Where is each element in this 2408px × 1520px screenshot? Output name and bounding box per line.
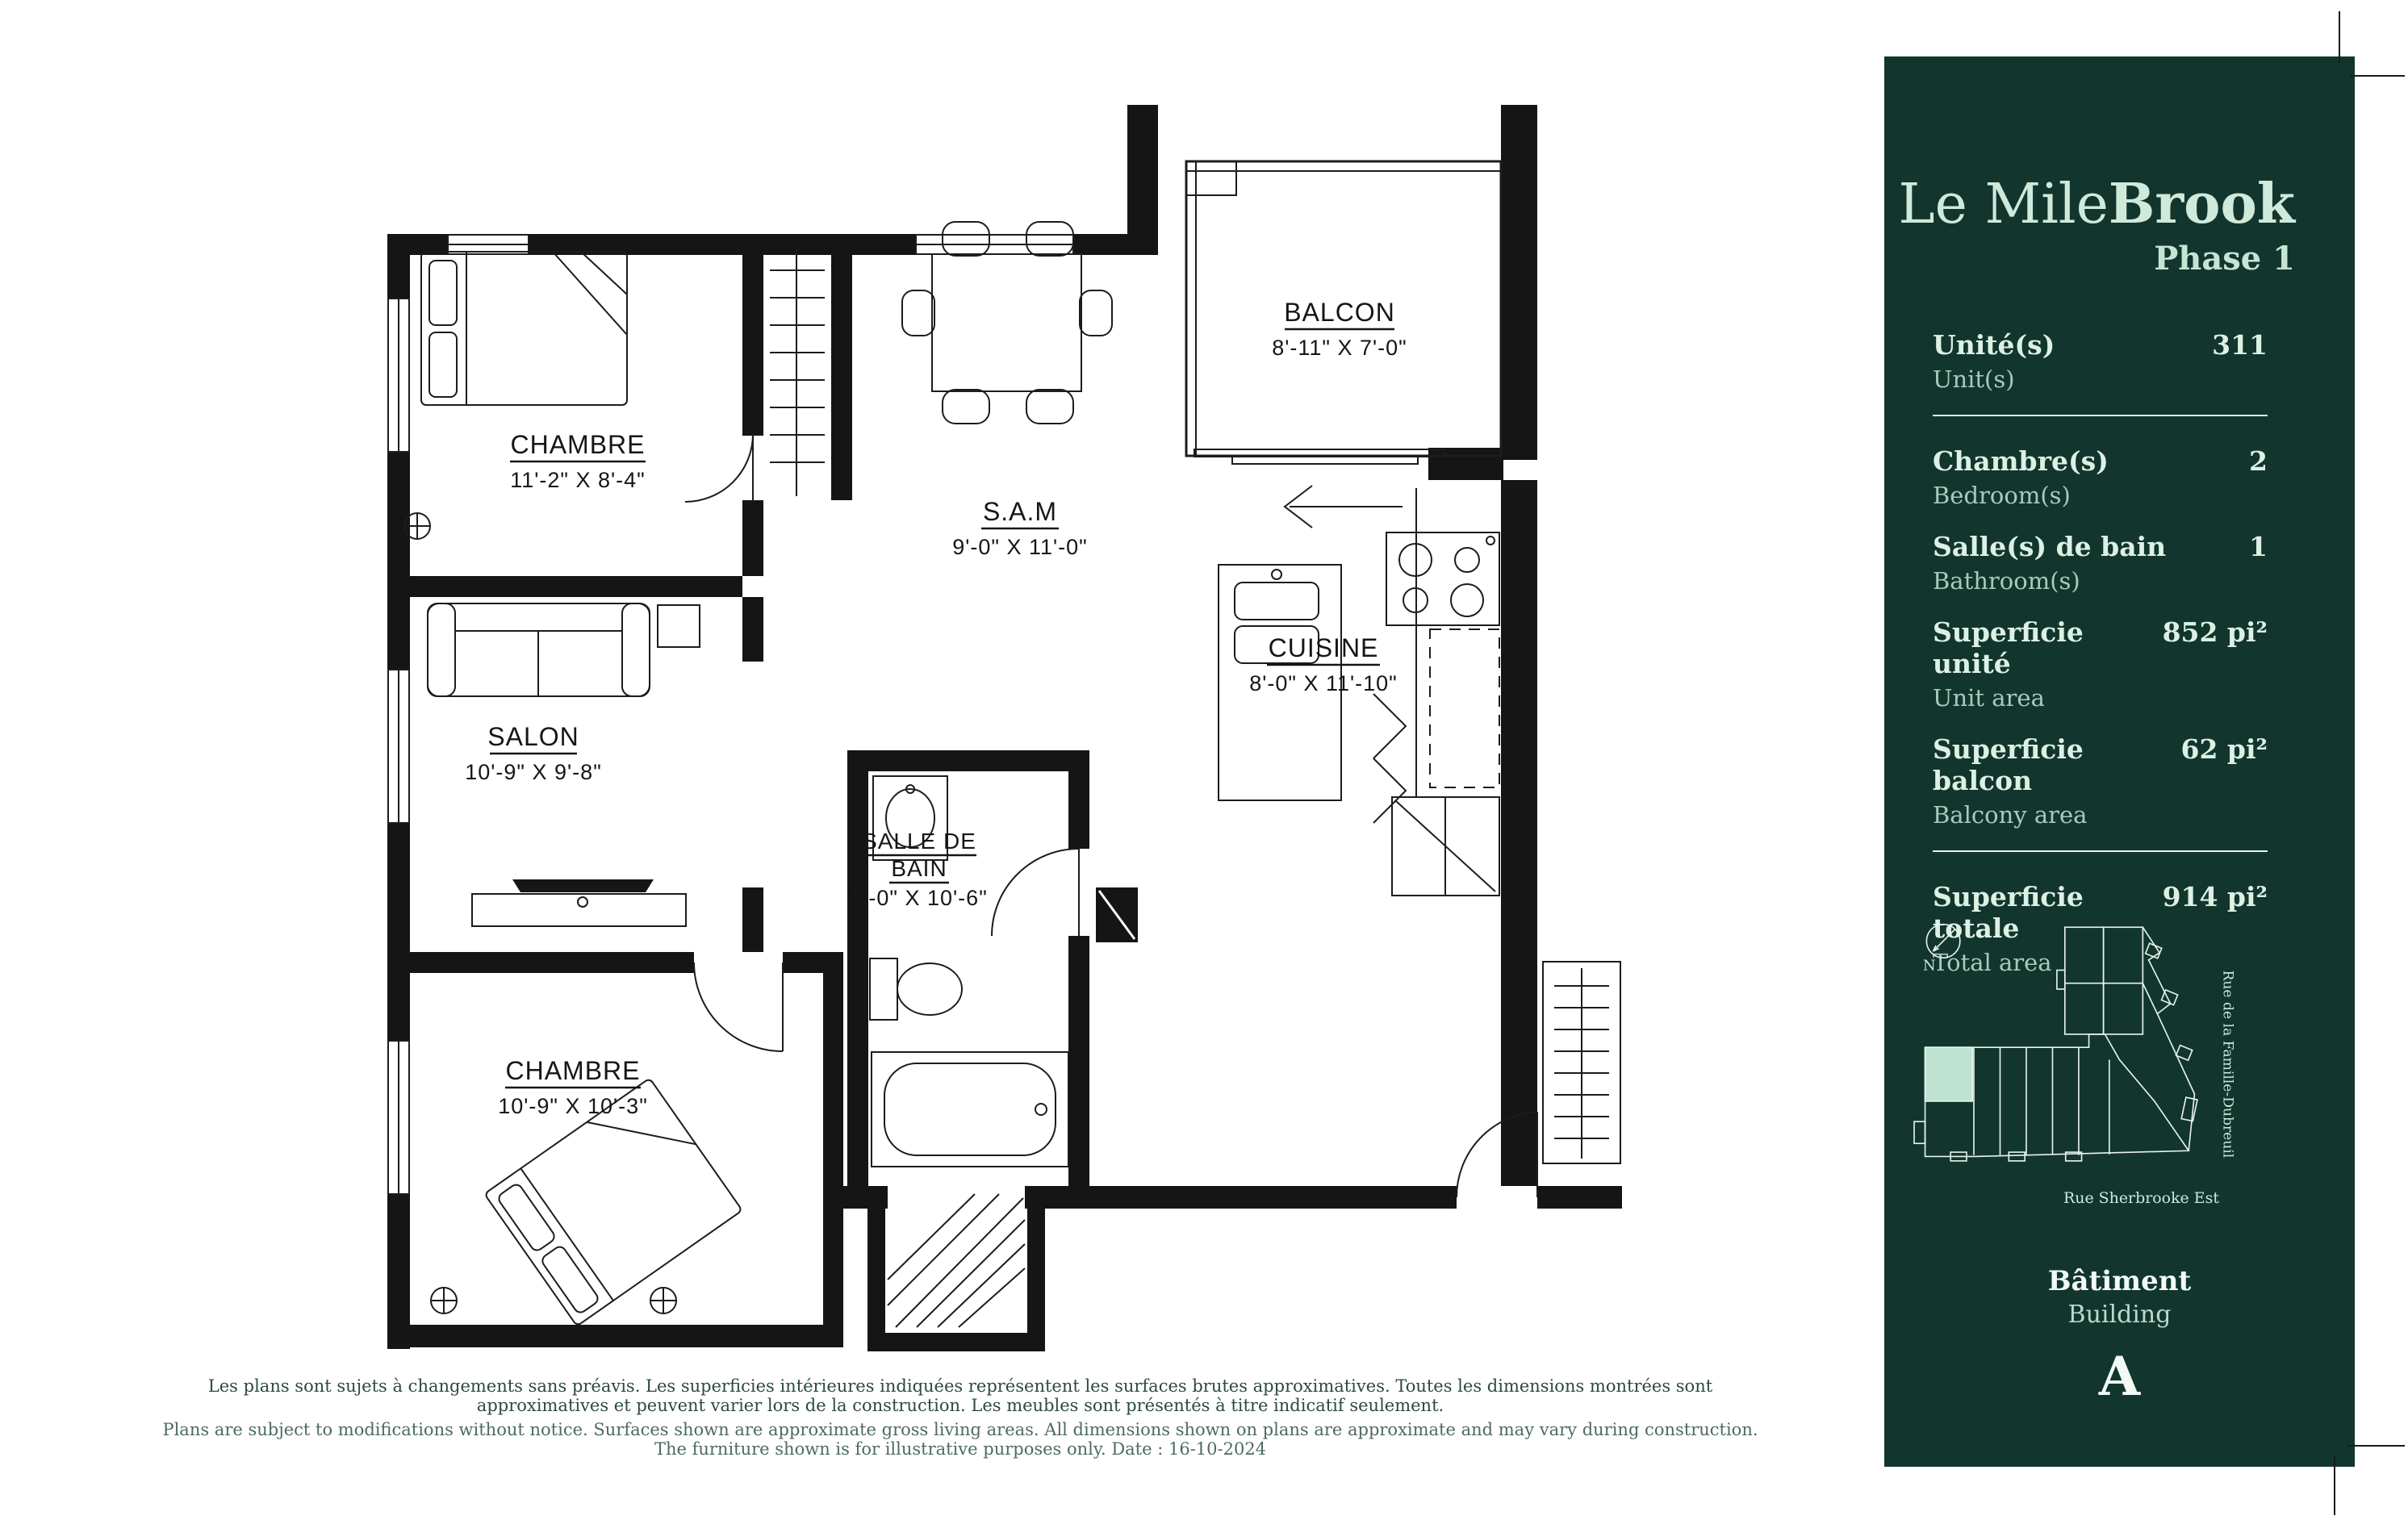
crop-mark <box>2350 75 2405 77</box>
ceiling-symbol-chambre1 <box>404 513 430 539</box>
unit-stats: Unité(s) Unit(s) 311 Chambre(s) Bedroom(… <box>1933 329 2268 998</box>
building-block: Bâtiment Building A <box>1884 1265 2355 1408</box>
stat-row-unit: Unité(s) Unit(s) 311 <box>1933 329 2268 393</box>
room-dims-bain: 5'-0" X 10'-6" <box>851 886 988 910</box>
stat-label-fr: Chambre(s) <box>1933 445 2109 477</box>
stat-label-en: Balcony area <box>1933 801 2181 829</box>
stat-label-fr: Superficie balcon <box>1933 733 2181 796</box>
phase-label: Phase 1 <box>1884 240 2295 278</box>
stat-label-en: Bedroom(s) <box>1933 482 2109 509</box>
room-dims-cuisine: 8'-0" X 11'-10" <box>1249 671 1398 695</box>
building-label-fr: Bâtiment <box>1884 1265 2355 1297</box>
crop-mark <box>2339 11 2340 63</box>
stat-value: 852 pi² <box>2163 616 2268 712</box>
stat-value: 1 <box>2249 531 2268 595</box>
room-dims-chambre1: 11'-2" X 8'-4" <box>510 468 646 492</box>
sofa <box>428 603 700 696</box>
room-label-balcon: BALCON <box>1284 298 1395 327</box>
site-map: N Rue de la Famille-Dubreuil Rue Sherbro… <box>1907 910 2347 1220</box>
compass-north-label: N <box>1923 958 1936 975</box>
project-title: Le MileBrook Phase 1 <box>1884 176 2295 278</box>
stat-row-balcony-area: Superficie balcon Balcony area 62 pi² <box>1933 733 2268 829</box>
disclaimer-french: Les plans sont sujets à changements sans… <box>153 1376 1767 1415</box>
tv-console <box>472 879 686 926</box>
room-dims-chambre2: 10'-9" X 10'-3" <box>498 1094 648 1118</box>
disclaimer: Les plans sont sujets à changements sans… <box>153 1376 1767 1459</box>
street-label-right: Rue de la Famille-Dubreuil <box>2220 971 2236 1159</box>
room-labels: CHAMBRE 11'-2" X 8'-4" S.A.M 9'-0" X 11'… <box>465 298 1407 1118</box>
highlighted-unit <box>1925 1047 1973 1101</box>
stat-value: 2 <box>2249 445 2268 509</box>
street-label-bottom: Rue Sherbrooke Est <box>2063 1189 2219 1207</box>
windows <box>388 235 1073 1194</box>
compass-icon <box>1926 925 1960 958</box>
disclaimer-english: Plans are subject to modifications witho… <box>153 1420 1767 1459</box>
crop-mark <box>2334 1457 2335 1515</box>
stat-row-bedrooms: Chambre(s) Bedroom(s) 2 <box>1933 445 2268 509</box>
crop-mark <box>2347 1445 2405 1447</box>
building-label-en: Building <box>1884 1301 2355 1329</box>
stat-row-unit-area: Superficie unité Unit area 852 pi² <box>1933 616 2268 712</box>
room-label-chambre2: CHAMBRE <box>505 1056 640 1085</box>
room-label-bain-1: SALLE DE <box>862 829 976 854</box>
stat-label-fr: Salle(s) de bain <box>1933 531 2166 562</box>
divider <box>1933 415 2268 416</box>
stat-value: 311 <box>2212 329 2268 393</box>
room-label-bain-2: BAIN <box>891 856 947 881</box>
title-bold: Brook <box>2109 172 2295 236</box>
stat-label-en: Bathroom(s) <box>1933 567 2166 595</box>
divider <box>1933 850 2268 852</box>
stat-label-en: Unit(s) <box>1933 365 2055 393</box>
map-building-outline <box>1914 927 2197 1161</box>
room-label-chambre1: CHAMBRE <box>510 430 645 459</box>
building-letter: A <box>1884 1345 2355 1408</box>
stat-label-en: Unit area <box>1933 684 2163 712</box>
room-label-cuisine: CUISINE <box>1269 633 1379 662</box>
room-dims-salon: 10'-9" X 9'-8" <box>465 760 602 784</box>
room-label-salon: SALON <box>487 722 579 751</box>
bed-chambre1 <box>421 252 627 405</box>
room-dims-balcon: 8'-11" X 7'-0" <box>1272 336 1407 360</box>
floor-plan: CHAMBRE 11'-2" X 8'-4" S.A.M 9'-0" X 11'… <box>186 48 1638 1372</box>
floor-plan-drawing: CHAMBRE 11'-2" X 8'-4" S.A.M 9'-0" X 11'… <box>186 48 1638 1372</box>
stat-value: 62 pi² <box>2181 733 2268 829</box>
title-prefix: Le Mile <box>1898 173 2108 236</box>
stat-row-bathrooms: Salle(s) de bain Bathroom(s) 1 <box>1933 531 2268 595</box>
doors <box>685 434 1537 1197</box>
room-label-sam: S.A.M <box>983 497 1057 526</box>
stat-label-fr: Superficie unité <box>1933 616 2163 679</box>
room-dims-sam: 9'-0" X 11'-0" <box>952 535 1088 559</box>
balcony-door-arrow <box>1285 486 1403 528</box>
stat-label-fr: Unité(s) <box>1933 329 2055 361</box>
info-sidebar: Le MileBrook Phase 1 Unité(s) Unit(s) 31… <box>1884 56 2355 1467</box>
